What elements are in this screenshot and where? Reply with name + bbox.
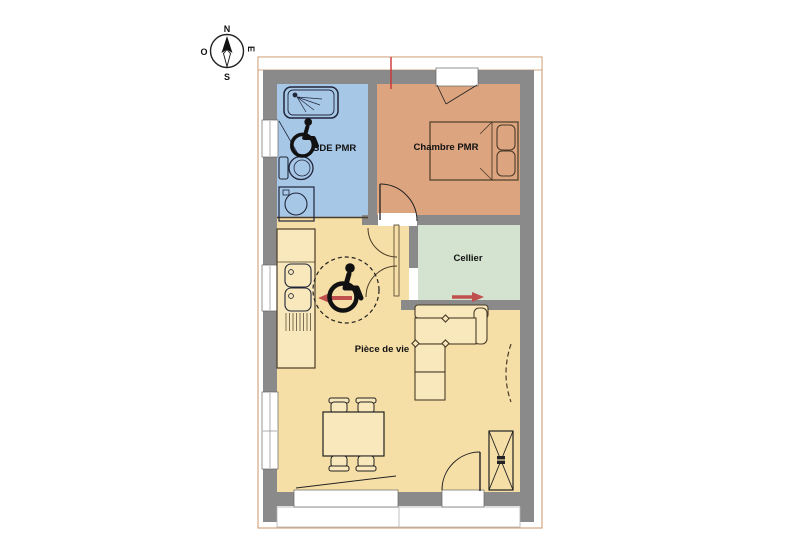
room-label-bedroom: Chambre PMR xyxy=(414,142,479,153)
terrace xyxy=(277,507,520,527)
chair xyxy=(358,456,374,467)
pillow xyxy=(497,151,515,176)
chair xyxy=(356,466,376,471)
compass-east-label: E xyxy=(246,46,256,52)
room-label-living: Pièce de vie xyxy=(355,344,409,355)
room-label-bathroom: SDE PMR xyxy=(313,143,356,154)
chair xyxy=(329,466,349,471)
window-kitchen xyxy=(262,265,278,311)
room-label-cellar: Cellier xyxy=(453,253,482,264)
floor-plan-canvas: SDE PMR Chambre PMR Cellier Pièce de vie… xyxy=(0,0,800,553)
compass-needle-south xyxy=(224,50,231,67)
window-dining xyxy=(262,392,278,469)
chair xyxy=(331,402,347,413)
compass-west-label: O xyxy=(200,47,207,57)
compass-rose: N S O E xyxy=(200,24,256,82)
chair xyxy=(331,456,347,467)
wall-right xyxy=(520,70,534,522)
kitchen-counter xyxy=(277,229,315,368)
kitchen xyxy=(277,229,315,368)
chair xyxy=(358,402,374,413)
hall-partition xyxy=(394,225,399,296)
dining-table xyxy=(323,412,384,456)
water-heater xyxy=(489,431,513,490)
compass-north-label: N xyxy=(224,24,231,34)
compass-south-label: S xyxy=(224,72,230,82)
shower-head-icon xyxy=(293,93,298,98)
floor-plan-page: SDE PMR Chambre PMR Cellier Pièce de vie… xyxy=(0,0,800,553)
wall-cellar-left xyxy=(409,225,418,268)
cellar-door-opening xyxy=(409,268,418,300)
wall-top xyxy=(263,70,534,84)
wall-bathroom-bedroom xyxy=(368,84,377,225)
pillow xyxy=(497,125,515,150)
eaves-band-top xyxy=(258,57,542,70)
